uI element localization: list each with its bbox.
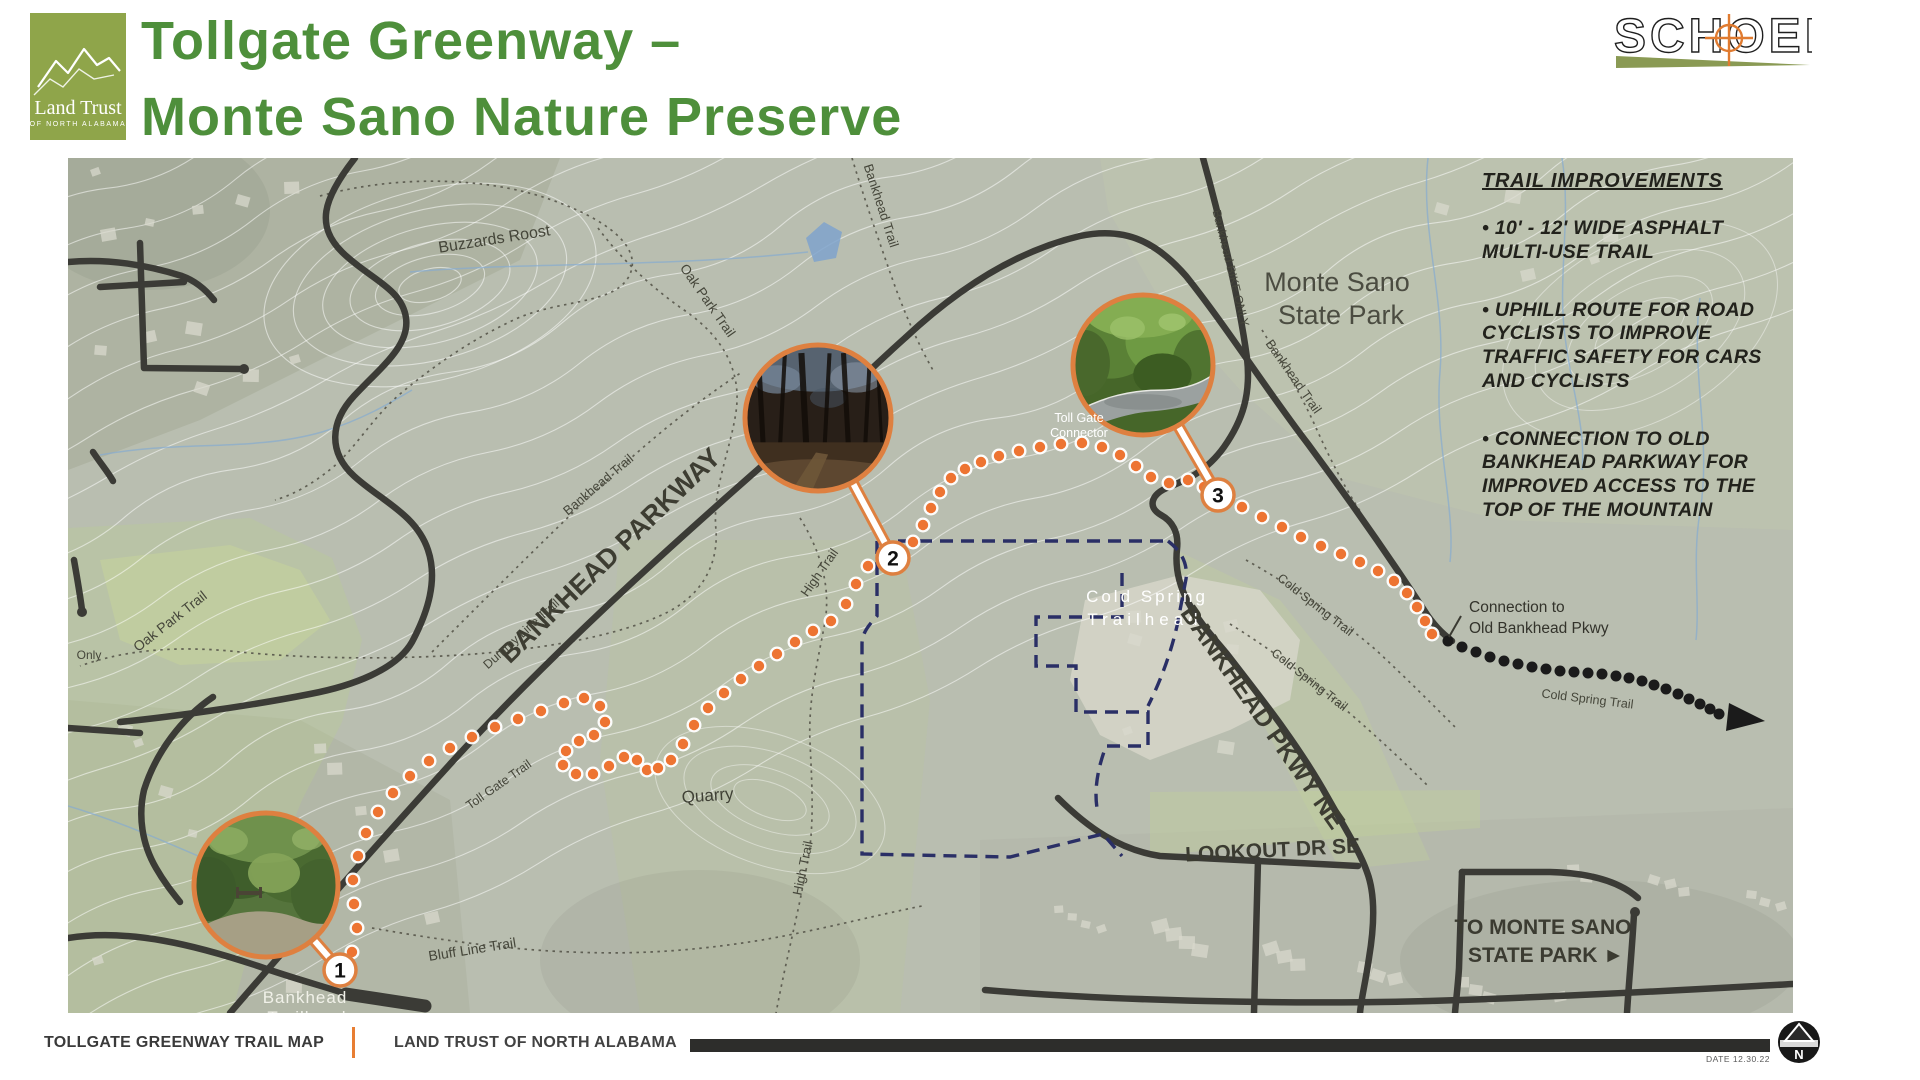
map-label: Connector — [1050, 426, 1108, 440]
future-trail-dot — [1485, 652, 1496, 663]
greenway-dot — [1056, 439, 1066, 449]
house — [314, 743, 326, 753]
greenway-dot — [976, 457, 986, 467]
house — [1469, 984, 1483, 996]
map-label: Trailhead — [267, 1008, 346, 1013]
map-label: Bankhead — [263, 988, 348, 1007]
greenway-dot — [579, 693, 589, 703]
greenway-dot — [1257, 512, 1267, 522]
map-label: STATE PARK ► — [1468, 944, 1624, 967]
greenway-dot — [960, 464, 970, 474]
greenway-dot — [1336, 549, 1346, 559]
footer-divider — [352, 1027, 355, 1058]
page-title-line1: Tollgate Greenway – — [141, 14, 681, 68]
map-label: Only — [77, 648, 102, 662]
greenway-dot — [558, 760, 568, 770]
greenway-dot — [571, 769, 581, 779]
greenway-dot — [1097, 442, 1107, 452]
greenway-dot — [1389, 576, 1399, 586]
greenway-dot — [1237, 502, 1247, 512]
logo-name: Land Trust — [34, 97, 122, 119]
greenway-dot — [1164, 478, 1174, 488]
greenway-dot — [588, 769, 598, 779]
greenway-dot — [559, 698, 569, 708]
house — [1067, 913, 1076, 921]
greenway-dot — [1014, 446, 1024, 456]
map-label: Cold Spring — [1086, 587, 1208, 606]
greenway-dot — [1115, 450, 1125, 460]
house — [94, 345, 107, 356]
footer-doc-title: TOLLGATE GREENWAY TRAIL MAP — [44, 1034, 324, 1052]
greenway-dot — [352, 923, 362, 933]
greenway-dot — [935, 487, 945, 497]
greenway-dot — [808, 626, 818, 636]
future-trail-dot — [1684, 694, 1695, 705]
future-trail-dot — [1527, 662, 1538, 673]
greenway-dot — [719, 688, 729, 698]
greenway-dot — [349, 899, 359, 909]
house — [284, 181, 299, 194]
greenway-dot — [666, 755, 676, 765]
greenway-dot — [1035, 442, 1045, 452]
map-label: Old Bankhead Pkwy — [1469, 620, 1609, 637]
future-trail-dot — [1673, 689, 1684, 700]
greenway-dot — [1427, 629, 1437, 639]
trail-marker-number: 2 — [887, 548, 899, 571]
house — [1054, 905, 1063, 913]
greenway-dot — [600, 717, 610, 727]
greenway-dot — [1412, 602, 1422, 612]
greenway-dot — [908, 537, 918, 547]
map-label: Quarry — [681, 784, 735, 807]
compass-n-label: N — [1794, 1047, 1803, 1062]
greenway-dot — [1420, 616, 1430, 626]
trail-improvements-list: • 10' - 12' WIDE ASPHALT MULTI-USE TRAIL… — [1482, 217, 1784, 523]
greenway-dot — [689, 720, 699, 730]
house — [100, 227, 117, 241]
future-trail-dot — [1597, 669, 1608, 680]
trail-marker-number: 3 — [1212, 485, 1224, 508]
greenway-dot — [632, 755, 642, 765]
date-stamp: DATE 12.30.22 — [1620, 1054, 1770, 1064]
greenway-dot — [703, 703, 713, 713]
greenway-dot — [574, 736, 584, 746]
house — [383, 848, 400, 862]
scale-bar — [690, 1039, 1770, 1052]
future-trail-dot — [1583, 668, 1594, 679]
map-label: State Park — [1278, 300, 1405, 330]
land-trust-logo: Land Trust OF NORTH ALABAMA — [30, 13, 126, 140]
greenway-dot — [1131, 461, 1141, 471]
greenway-dot — [1146, 472, 1156, 482]
greenway-dot — [353, 851, 363, 861]
north-arrow-icon: N — [1776, 1019, 1822, 1065]
greenway-dot — [373, 807, 383, 817]
schoel-logo: SCHOEL — [1612, 12, 1812, 72]
greenway-dot — [1316, 541, 1326, 551]
house — [192, 205, 204, 215]
trail-marker-number: 1 — [334, 960, 346, 983]
greenway-dot — [490, 722, 500, 732]
greenway-dot — [1183, 475, 1193, 485]
map-label: Toll Gate — [1054, 411, 1103, 425]
greenway-dot — [561, 746, 571, 756]
future-trail-dot — [1611, 671, 1622, 682]
map-label: Monte Sano — [1264, 267, 1410, 297]
greenway-dot — [926, 503, 936, 513]
greenway-dot — [1402, 588, 1412, 598]
greenway-dot — [361, 828, 371, 838]
greenway-dot — [851, 579, 861, 589]
house — [1678, 887, 1690, 897]
house — [1217, 740, 1235, 755]
greenway-dot — [619, 752, 629, 762]
future-trail-dot — [1714, 709, 1725, 720]
greenway-dot — [388, 788, 398, 798]
map-label: Connection to — [1469, 599, 1565, 616]
future-trail-dot — [1513, 659, 1524, 670]
greenway-dot — [424, 756, 434, 766]
greenway-dot — [536, 706, 546, 716]
future-trail-dot — [1443, 636, 1454, 647]
future-trail-dot — [1649, 680, 1660, 691]
future-trail-dot — [1695, 699, 1706, 710]
page-title-line2: Monte Sano Nature Preserve — [141, 90, 902, 144]
future-trail-dot — [1555, 666, 1566, 677]
trail-improvements-title: TRAIL IMPROVEMENTS — [1482, 170, 1784, 193]
greenway-dot — [595, 701, 605, 711]
house — [1746, 890, 1757, 899]
greenway-dot — [678, 739, 688, 749]
greenway-dot — [1296, 532, 1306, 542]
greenway-dot — [1355, 557, 1365, 567]
trail-improvements-panel: TRAIL IMPROVEMENTS • 10' - 12' WIDE ASPH… — [1482, 170, 1784, 557]
trail-improvement-item: • CONNECTION TO OLD BANKHEAD PARKWAY FOR… — [1482, 428, 1784, 523]
greenway-dot — [1277, 522, 1287, 532]
future-trail-dot — [1457, 642, 1468, 653]
greenway-dot — [790, 637, 800, 647]
greenway-dot — [348, 875, 358, 885]
future-trail-dot — [1471, 647, 1482, 658]
greenway-dot — [994, 451, 1004, 461]
logo-subname: OF NORTH ALABAMA — [30, 121, 126, 128]
future-trail-dot — [1541, 664, 1552, 675]
greenway-dot — [826, 616, 836, 626]
greenway-dot — [841, 599, 851, 609]
future-trail-dot — [1499, 656, 1510, 667]
greenway-dot — [513, 714, 523, 724]
greenway-dot — [946, 473, 956, 483]
trail-improvement-item: • 10' - 12' WIDE ASPHALT MULTI-USE TRAIL — [1482, 217, 1784, 265]
house — [327, 762, 342, 775]
greenway-dot — [736, 674, 746, 684]
greenway-dot — [863, 561, 873, 571]
slide: Land Trust OF NORTH ALABAMA Tollgate Gre… — [0, 0, 1920, 1080]
greenway-dot — [1373, 566, 1383, 576]
greenway-dot — [604, 761, 614, 771]
greenway-dot — [467, 732, 477, 742]
house — [355, 806, 367, 816]
greenway-dot — [772, 649, 782, 659]
future-trail-dot — [1661, 684, 1672, 695]
trail-improvement-item: • UPHILL ROUTE FOR ROAD CYCLISTS TO IMPR… — [1482, 299, 1784, 394]
house — [185, 321, 203, 336]
future-trail-dot — [1569, 667, 1580, 678]
greenway-dot — [405, 771, 415, 781]
map-label: TO MONTE SANO — [1455, 916, 1632, 939]
greenway-dot — [653, 763, 663, 773]
greenway-dot — [445, 743, 455, 753]
future-trail-dot — [1637, 676, 1648, 687]
future-trail-dot — [1624, 673, 1635, 684]
footer-org-name: LAND TRUST OF NORTH ALABAMA — [394, 1034, 677, 1052]
greenway-dot — [918, 520, 928, 530]
greenway-dot — [642, 765, 652, 775]
greenway-dot — [754, 661, 764, 671]
greenway-dot — [589, 730, 599, 740]
